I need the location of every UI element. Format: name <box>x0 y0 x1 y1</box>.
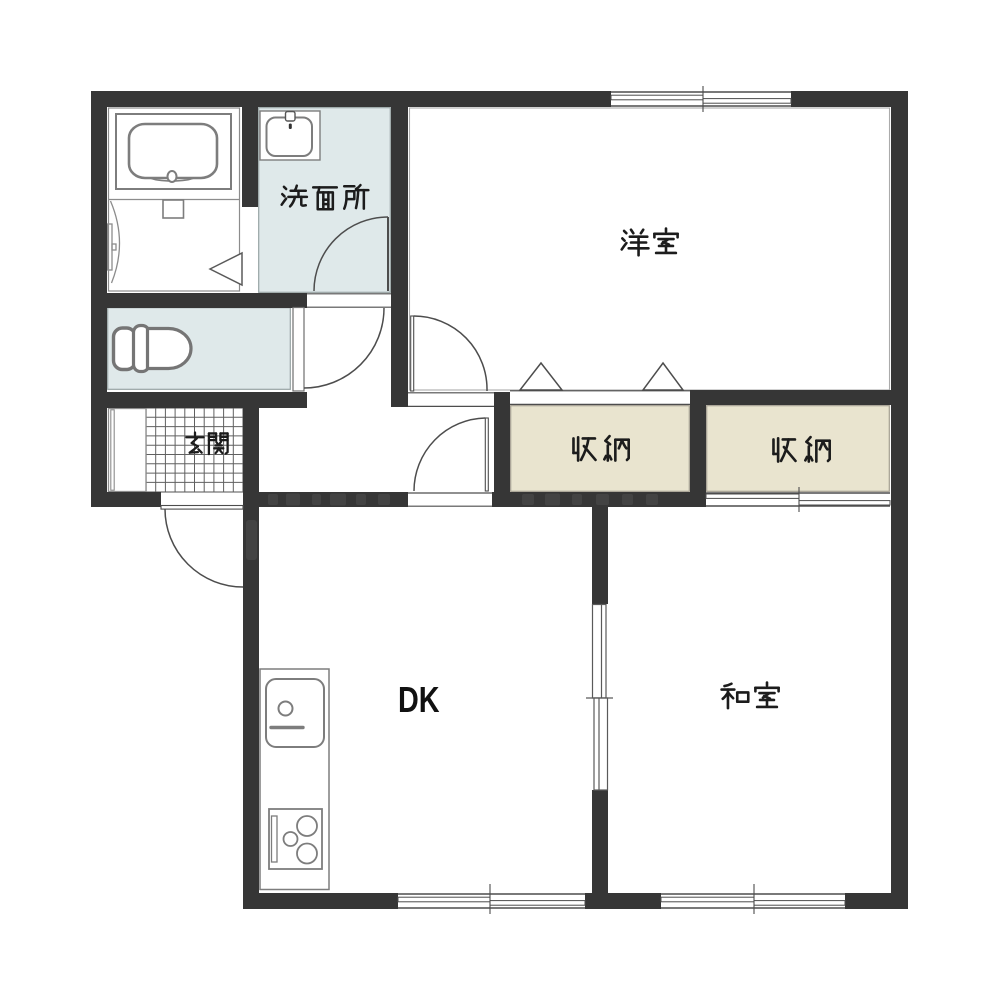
svg-text:DK: DK <box>398 679 440 720</box>
